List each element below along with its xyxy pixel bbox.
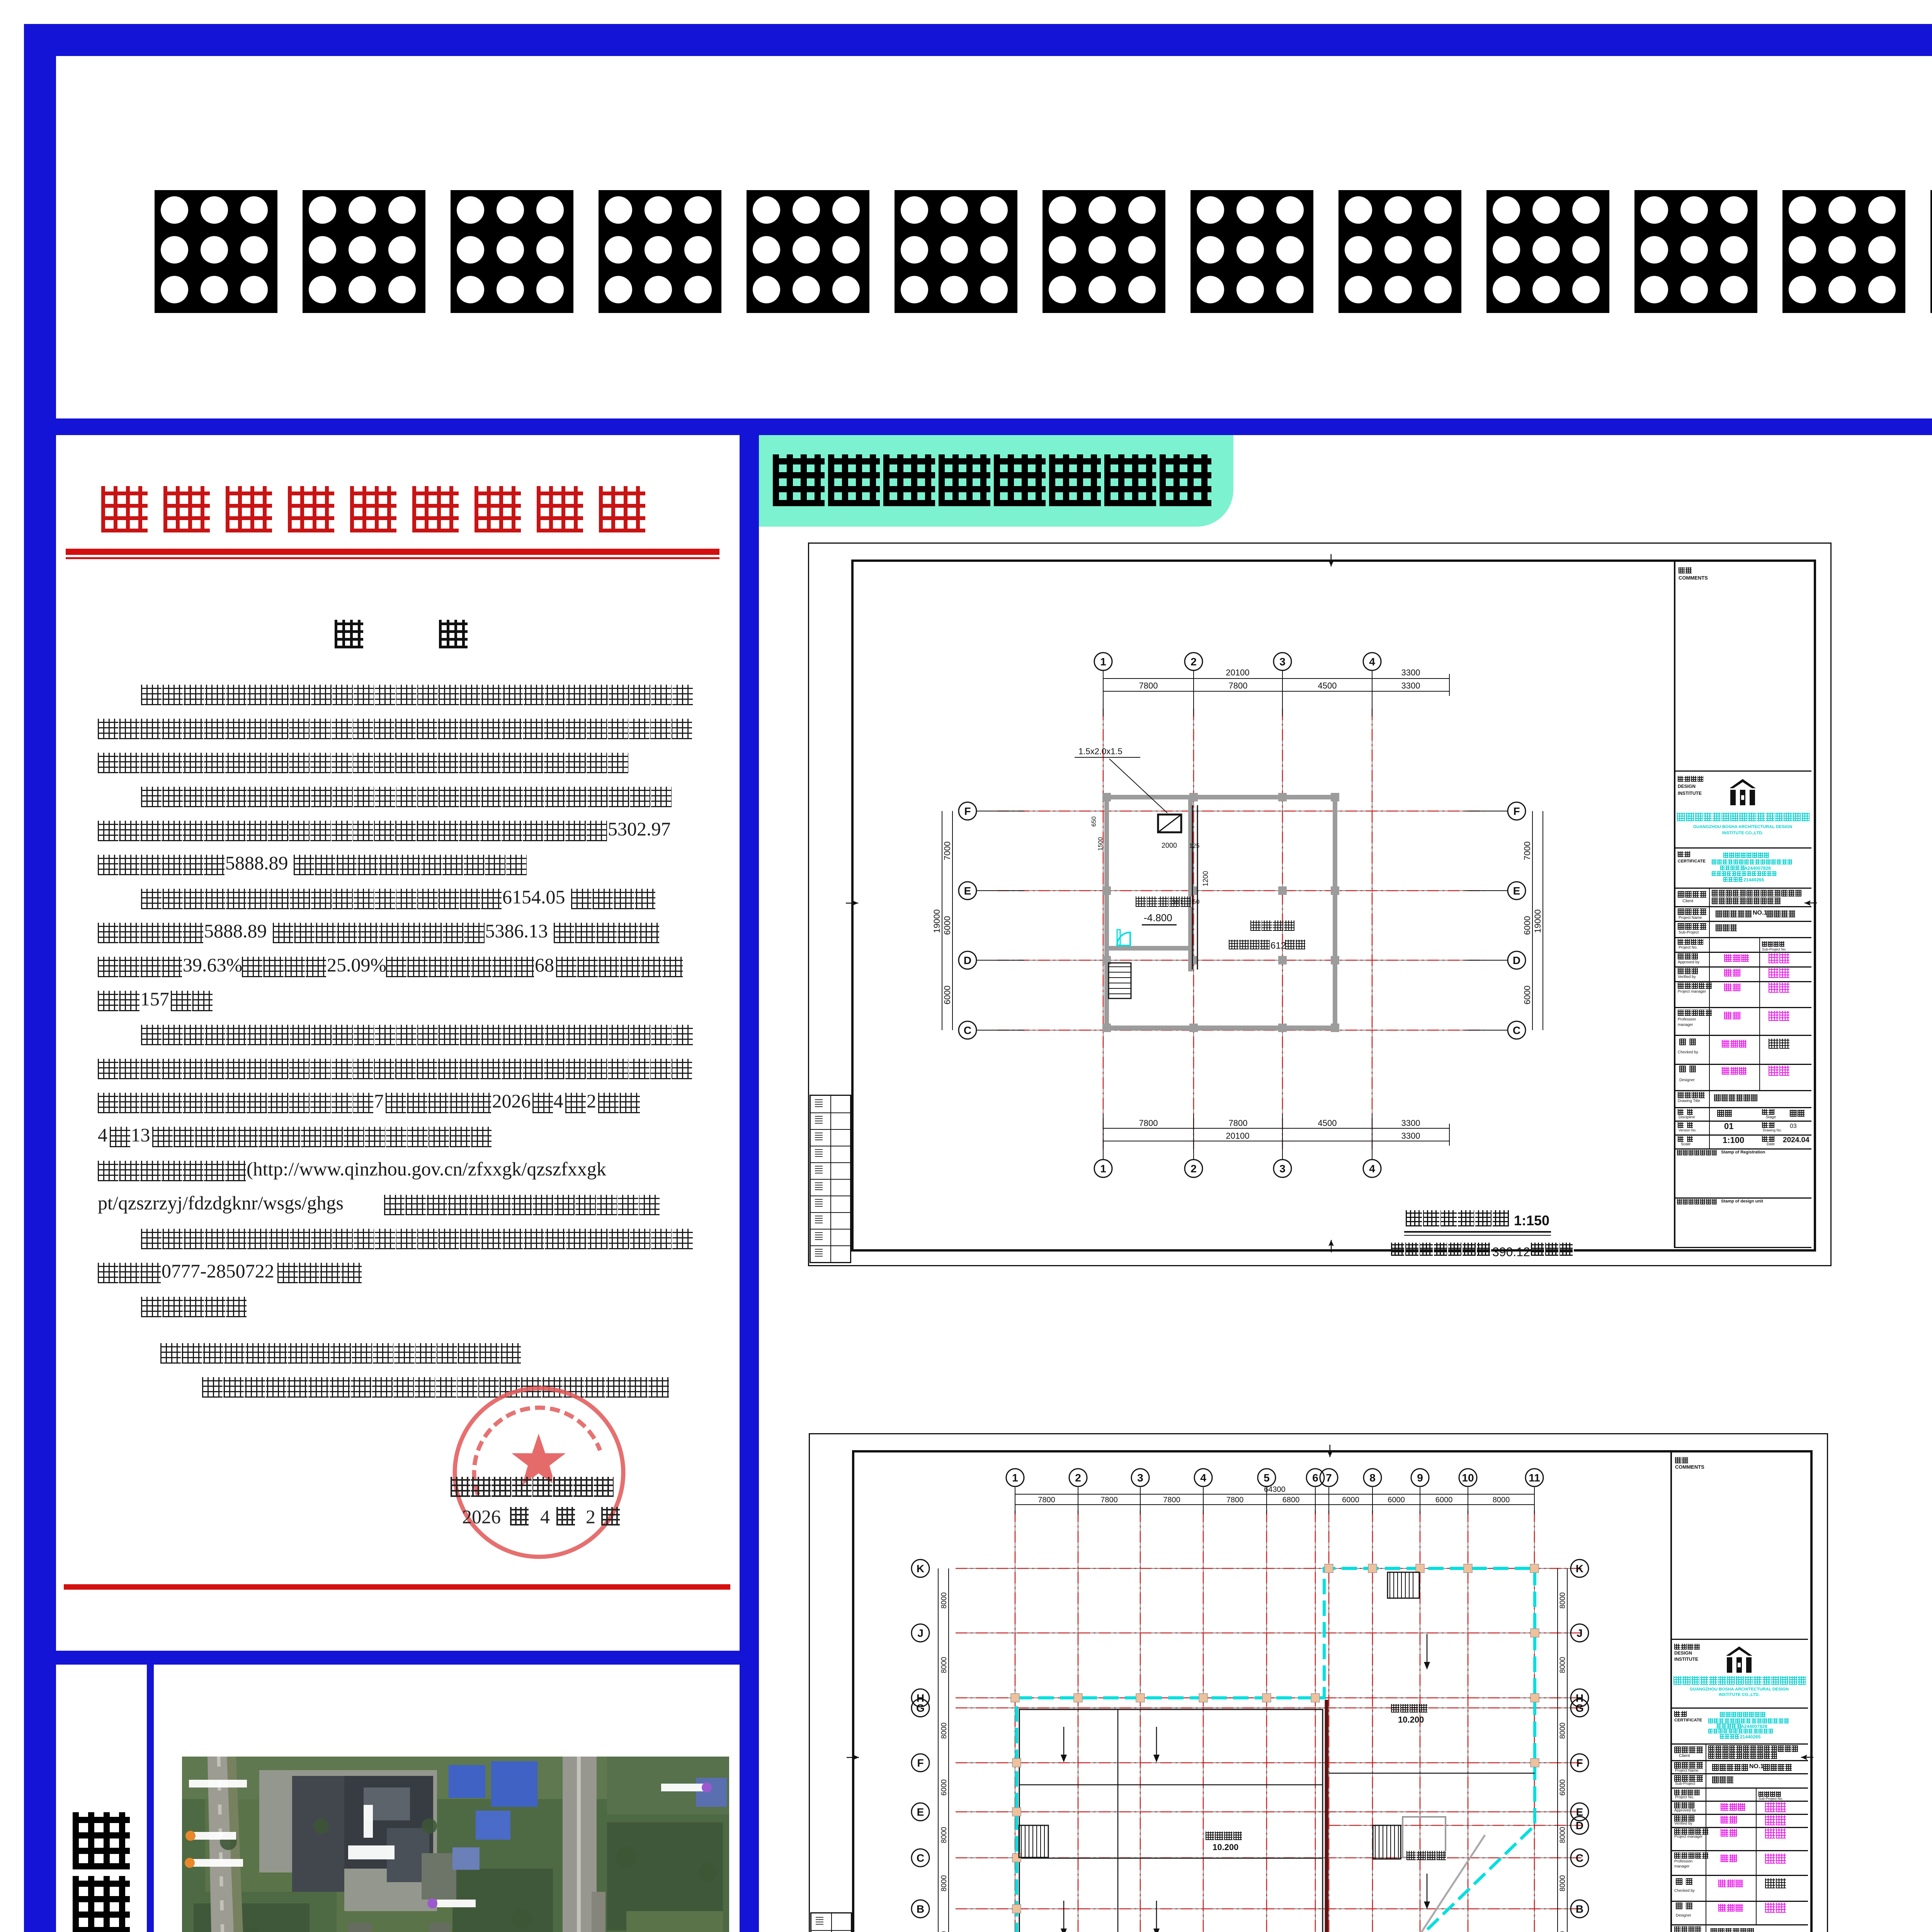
svg-text:11: 11 xyxy=(1529,1472,1540,1484)
svg-text:6000: 6000 xyxy=(1522,986,1532,1005)
svg-text:C: C xyxy=(1513,1024,1520,1036)
svg-text:3: 3 xyxy=(1137,1472,1143,1484)
svg-text:64300: 64300 xyxy=(1264,1485,1286,1494)
svg-text:4: 4 xyxy=(1369,656,1375,668)
svg-text:1: 1 xyxy=(1100,656,1106,668)
svg-text:8000: 8000 xyxy=(1559,1827,1567,1843)
svg-text:2: 2 xyxy=(1190,1163,1197,1175)
svg-text:19000: 19000 xyxy=(932,909,942,933)
svg-text:J: J xyxy=(1577,1627,1583,1639)
svg-text:K: K xyxy=(1576,1563,1583,1575)
svg-text:5: 5 xyxy=(1264,1472,1270,1484)
svg-text:6800: 6800 xyxy=(1282,1496,1300,1504)
svg-text:7800: 7800 xyxy=(1229,1118,1248,1128)
svg-text:7800: 7800 xyxy=(1100,1496,1118,1504)
svg-text:C: C xyxy=(1576,1852,1583,1864)
svg-text:8000: 8000 xyxy=(1559,1875,1567,1891)
svg-text:3300: 3300 xyxy=(1401,668,1420,677)
svg-text:D: D xyxy=(1513,954,1520,966)
svg-text:E: E xyxy=(1513,885,1520,897)
svg-text:10: 10 xyxy=(1462,1472,1474,1484)
svg-text:8000: 8000 xyxy=(940,1875,948,1891)
svg-text:3: 3 xyxy=(1279,1163,1286,1175)
svg-text:K: K xyxy=(917,1563,924,1575)
svg-text:C: C xyxy=(917,1852,924,1864)
svg-text:6000: 6000 xyxy=(1522,916,1532,935)
svg-text:8: 8 xyxy=(1369,1472,1376,1484)
svg-text:6: 6 xyxy=(1312,1472,1318,1484)
svg-text:3300: 3300 xyxy=(1401,681,1420,690)
svg-text:8000: 8000 xyxy=(940,1827,948,1843)
svg-text:J: J xyxy=(917,1627,923,1639)
svg-text:2: 2 xyxy=(1190,656,1197,668)
svg-text:7000: 7000 xyxy=(942,842,952,861)
svg-text:B: B xyxy=(1576,1903,1583,1915)
svg-text:E: E xyxy=(917,1806,924,1818)
svg-text:2: 2 xyxy=(1075,1472,1081,1484)
svg-text:7800: 7800 xyxy=(1163,1496,1180,1504)
svg-text:3: 3 xyxy=(1279,656,1286,668)
svg-text:C: C xyxy=(964,1024,971,1036)
svg-text:E: E xyxy=(964,885,971,897)
svg-text:6000: 6000 xyxy=(940,1779,948,1796)
svg-text:F: F xyxy=(917,1757,923,1769)
svg-text:4500: 4500 xyxy=(1318,1118,1337,1128)
svg-text:B: B xyxy=(917,1903,924,1915)
svg-text:19000: 19000 xyxy=(1533,909,1543,933)
svg-text:1200: 1200 xyxy=(1202,871,1209,886)
svg-text:6000: 6000 xyxy=(1435,1496,1453,1504)
svg-text:4500: 4500 xyxy=(1318,681,1337,690)
svg-text:F: F xyxy=(1513,805,1520,817)
svg-text:125: 125 xyxy=(1189,843,1200,849)
svg-text:7800: 7800 xyxy=(1226,1496,1244,1504)
svg-text:8000: 8000 xyxy=(940,1592,948,1609)
svg-text:8000: 8000 xyxy=(940,1723,948,1739)
svg-text:4: 4 xyxy=(1369,1163,1375,1175)
svg-text:8000: 8000 xyxy=(1493,1496,1510,1504)
svg-text:D: D xyxy=(964,954,971,966)
svg-text:6000: 6000 xyxy=(1342,1496,1359,1504)
svg-text:F: F xyxy=(964,805,971,817)
svg-text:D: D xyxy=(1576,1820,1583,1832)
svg-text:6000: 6000 xyxy=(942,916,952,935)
svg-text:9: 9 xyxy=(1417,1472,1423,1484)
svg-text:3300: 3300 xyxy=(1401,1131,1420,1141)
svg-text:6000: 6000 xyxy=(1559,1779,1567,1796)
svg-text:F: F xyxy=(1576,1757,1583,1769)
svg-text:7800: 7800 xyxy=(1139,681,1158,690)
svg-text:8000: 8000 xyxy=(940,1657,948,1673)
svg-text:8000: 8000 xyxy=(1559,1592,1567,1609)
svg-text:1: 1 xyxy=(1100,1163,1106,1175)
svg-text:1.5x2.0x1.5: 1.5x2.0x1.5 xyxy=(1078,747,1122,756)
svg-text:20100: 20100 xyxy=(1226,668,1249,677)
svg-text:1500: 1500 xyxy=(1097,837,1104,851)
svg-text:8000: 8000 xyxy=(1559,1657,1567,1673)
svg-text:7000: 7000 xyxy=(1522,842,1532,861)
svg-text:G: G xyxy=(1575,1702,1584,1714)
svg-text:3300: 3300 xyxy=(1401,1118,1420,1128)
svg-text:7800: 7800 xyxy=(1038,1496,1055,1504)
svg-text:8000: 8000 xyxy=(1559,1723,1567,1739)
svg-text:G: G xyxy=(916,1702,925,1714)
svg-text:20100: 20100 xyxy=(1226,1131,1249,1141)
svg-text:4: 4 xyxy=(1200,1472,1206,1484)
svg-text:6000: 6000 xyxy=(942,986,952,1005)
svg-text:6000: 6000 xyxy=(1388,1496,1405,1504)
svg-text:1: 1 xyxy=(1012,1472,1018,1484)
svg-text:2000: 2000 xyxy=(1162,842,1177,849)
svg-text:650: 650 xyxy=(1091,816,1097,827)
svg-text:7800: 7800 xyxy=(1229,681,1248,690)
svg-text:7800: 7800 xyxy=(1139,1118,1158,1128)
svg-text:7: 7 xyxy=(1326,1472,1332,1484)
